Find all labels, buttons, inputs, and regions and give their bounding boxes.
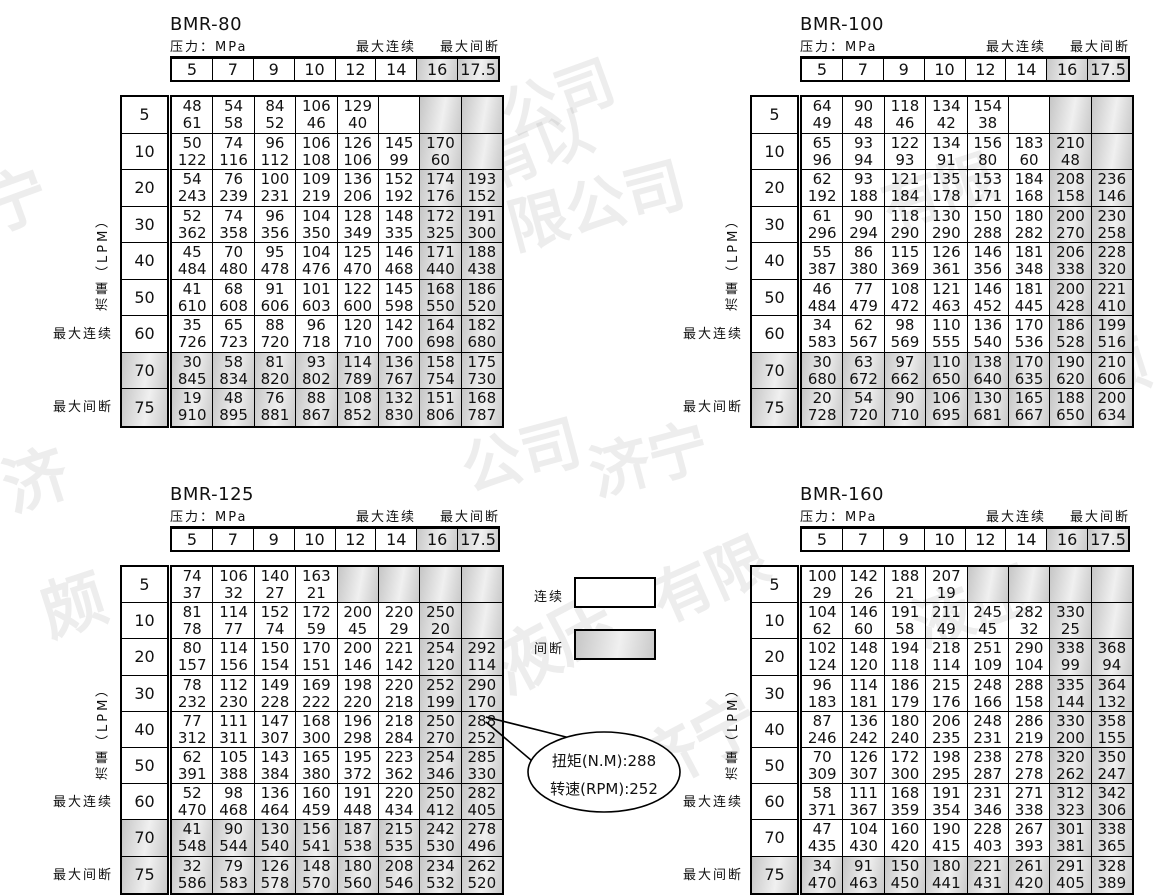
torque-value: 186 [462, 281, 502, 298]
pressure-header-cell: 14 [1006, 529, 1047, 550]
speed-value: 37 [172, 585, 212, 602]
data-cell: 34470 [802, 857, 843, 893]
data-cell: 120710 [338, 316, 379, 353]
torque-value: 200 [338, 640, 378, 657]
speed-value: 219 [296, 188, 336, 205]
data-cell: 54243 [172, 170, 213, 207]
torque-value: 207 [926, 568, 966, 585]
data-cell: 286219 [1009, 712, 1050, 748]
speed-value: 290 [885, 225, 925, 242]
speed-value: 307 [255, 730, 295, 747]
data-cell: 96183 [802, 676, 843, 712]
speed-value: 338 [1009, 802, 1049, 819]
data-cell: 170536 [1009, 316, 1050, 353]
data-cell: 215176 [926, 676, 967, 712]
torque-value: 104 [802, 604, 842, 621]
torque-value: 90 [885, 390, 925, 407]
speed-value: 247 [1092, 766, 1132, 783]
speed-value: 158 [1050, 188, 1090, 205]
speed-value: 168 [1009, 188, 1049, 205]
torque-value: 242 [420, 821, 460, 838]
torque-value: 136 [843, 713, 883, 730]
data-cell: 4861 [172, 97, 213, 134]
data-table-body: 6449904811846134421543865969394122931349… [800, 95, 1134, 428]
torque-value: 170 [1009, 317, 1049, 334]
speed-value: 528 [1050, 334, 1090, 351]
data-cell: 170635 [1009, 353, 1050, 390]
data-cell: 12940 [338, 97, 379, 134]
torque-value: 125 [338, 244, 378, 261]
flow-header-cell: 30 [122, 676, 167, 712]
data-cell: 200428 [1050, 280, 1091, 317]
torque-value: 215 [926, 677, 966, 694]
torque-value: 41 [172, 821, 212, 838]
pressure-header-row: 5791012141617.5 [170, 527, 500, 552]
torque-value: 48 [172, 98, 212, 115]
torque-value: 282 [462, 785, 502, 802]
data-cell: 278496 [462, 820, 502, 856]
torque-value: 172 [420, 208, 460, 225]
torque-value: 97 [885, 354, 925, 371]
speed-value: 710 [338, 334, 378, 351]
data-cell: 62192 [802, 170, 843, 207]
torque-value: 114 [338, 354, 378, 371]
table-row: 8015711415615015417015120014622114225412… [172, 639, 502, 675]
data-cell: 218284 [379, 712, 420, 748]
flow-header-cell: 75 [122, 389, 167, 426]
data-cell: 220218 [379, 676, 420, 712]
torque-value: 114 [843, 677, 883, 694]
data-cell: 160459 [296, 784, 337, 820]
max-continuous-column-label: 最大连续 [986, 506, 1046, 525]
pressure-header-cell: 12 [966, 529, 1007, 550]
torque-value: 330 [1050, 604, 1090, 621]
data-cell: 136540 [968, 316, 1009, 353]
data-cell: 330200 [1050, 712, 1091, 748]
data-cell: 80157 [172, 639, 213, 675]
speed-value: 122 [172, 152, 212, 169]
torque-value: 41 [172, 281, 212, 298]
speed-value: 290 [926, 225, 966, 242]
torque-value: 142 [843, 568, 883, 585]
pressure-header-row: 5791012141617.5 [800, 57, 1130, 82]
torque-value: 100 [802, 568, 842, 585]
speed-value: 428 [1050, 298, 1090, 315]
speed-value: 330 [462, 766, 502, 783]
torque-value: 151 [420, 390, 460, 407]
pressure-header-cell: 7 [213, 59, 254, 80]
flow-header-cell: 70 [752, 820, 797, 856]
torque-value: 61 [802, 208, 842, 225]
watermark-text: 济 [0, 422, 79, 529]
speed-value: 104 [1009, 657, 1049, 674]
speed-value: 45 [968, 621, 1008, 638]
table-row: 6129690294118290130290150288180282200270… [802, 207, 1132, 244]
torque-value: 221 [1092, 281, 1132, 298]
speed-value: 567 [843, 334, 883, 351]
torque-value: 228 [1092, 244, 1132, 261]
data-cell: 218114 [926, 639, 967, 675]
speed-value: 152 [462, 188, 502, 205]
torque-value: 168 [462, 390, 502, 407]
torque-value: 111 [213, 713, 253, 730]
table-row: 4648477479108472121463146452181445200428… [802, 280, 1132, 317]
data-cell: 79583 [213, 857, 254, 893]
speed-value: 852 [338, 407, 378, 424]
speed-value: 608 [213, 298, 253, 315]
data-cell: 168550 [420, 280, 461, 317]
data-cell: 250412 [420, 784, 461, 820]
speed-value: 294 [843, 225, 883, 242]
table-row: 1021241481201941182181142511092901043389… [802, 639, 1132, 675]
torque-value: 180 [885, 713, 925, 730]
torque-value: 286 [1009, 713, 1049, 730]
data-cell: 242530 [420, 820, 461, 856]
data-cell: 15680 [968, 134, 1009, 171]
data-cell: 15274 [255, 603, 296, 639]
torque-value: 338 [1050, 640, 1090, 657]
speed-value: 176 [926, 694, 966, 711]
flow-header-cell: 75 [752, 857, 797, 893]
pressure-header-row: 5791012141617.5 [800, 527, 1130, 552]
speed-value: 387 [802, 261, 842, 278]
data-cell: 111367 [843, 784, 884, 820]
data-cell: 278278 [1009, 748, 1050, 784]
speed-value: 58 [213, 115, 253, 132]
torque-value: 138 [968, 354, 1008, 371]
speed-value: 350 [296, 225, 336, 242]
torque-value: 350 [1092, 749, 1132, 766]
data-cell: 182680 [462, 316, 502, 353]
speed-value: 834 [213, 371, 253, 388]
torque-value: 182 [462, 317, 502, 334]
pressure-header-cell: 10 [295, 529, 336, 550]
speed-value: 420 [885, 838, 925, 855]
pressure-header-cell: 16 [1047, 529, 1088, 550]
torque-value: 254 [420, 640, 460, 657]
max-continuous-row-label: 最大连续 [637, 791, 743, 810]
speed-value: 728 [802, 407, 842, 424]
data-cell [462, 567, 502, 603]
flow-header-cell: 40 [122, 243, 167, 280]
data-cell: 190620 [1050, 353, 1091, 390]
torque-value: 165 [296, 749, 336, 766]
data-cell: 121184 [885, 170, 926, 207]
torque-value: 220 [379, 677, 419, 694]
data-cell: 191448 [338, 784, 379, 820]
speed-value: 530 [420, 838, 460, 855]
data-cell: 96356 [255, 207, 296, 244]
data-cell: 150450 [885, 857, 926, 893]
data-cell: 254120 [420, 639, 461, 675]
data-cell: 30845 [172, 353, 213, 390]
torque-value: 188 [1050, 390, 1090, 407]
data-cell [420, 567, 461, 603]
data-cell: 52362 [172, 207, 213, 244]
pressure-header-cell: 12 [336, 59, 377, 80]
torque-value: 254 [420, 749, 460, 766]
data-cell: 110555 [926, 316, 967, 353]
speed-value: 60 [420, 152, 460, 169]
speed-value: 720 [255, 334, 295, 351]
torque-value: 63 [843, 354, 883, 371]
data-cell: 282405 [462, 784, 502, 820]
speed-value: 219 [1009, 730, 1049, 747]
table-row: 3258679583126578148570180560208546234532… [172, 857, 502, 893]
speed-value: 435 [802, 838, 842, 855]
max-intermittent-column-label: 最大间断 [1070, 36, 1130, 55]
speed-value: 346 [968, 802, 1008, 819]
speed-value: 723 [213, 334, 253, 351]
torque-value: 77 [843, 281, 883, 298]
speed-value: 154 [255, 657, 295, 674]
pressure-header-cell: 9 [884, 59, 925, 80]
speed-value: 231 [968, 730, 1008, 747]
speed-value: 540 [255, 838, 295, 855]
data-cell: 118290 [885, 207, 926, 244]
data-cell: 180560 [338, 857, 379, 893]
data-cell: 9394 [843, 134, 884, 171]
torque-value: 148 [296, 858, 336, 875]
speed-value: 170 [462, 694, 502, 711]
data-cell: 6449 [802, 97, 843, 134]
data-cell: 186179 [885, 676, 926, 712]
speed-value: 120 [843, 657, 883, 674]
speed-value: 42 [926, 115, 966, 132]
torque-value: 88 [255, 317, 295, 334]
speed-value: 470 [172, 802, 212, 819]
data-cell: 33025 [1050, 603, 1091, 639]
torque-value: 208 [1050, 171, 1090, 188]
max-intermittent-column-label: 最大间断 [440, 36, 500, 55]
data-cell: 248231 [968, 712, 1009, 748]
data-cell: 88867 [296, 389, 337, 426]
data-cell: 55387 [802, 243, 843, 280]
data-cell: 136242 [843, 712, 884, 748]
flow-header-cell: 20 [122, 639, 167, 675]
torque-value: 218 [926, 640, 966, 657]
torque-value: 106 [926, 390, 966, 407]
torque-value: 282 [1009, 604, 1049, 621]
torque-value: 278 [1009, 749, 1049, 766]
flow-header-cell: 30 [752, 676, 797, 712]
speed-value: 287 [968, 766, 1008, 783]
torque-value: 65 [802, 135, 842, 152]
speed-value: 895 [213, 407, 253, 424]
pressure-unit-label: 压力：MPa [170, 36, 247, 55]
speed-value: 288 [968, 225, 1008, 242]
speed-value: 787 [462, 407, 502, 424]
data-cell: 8452 [255, 97, 296, 134]
speed-value: 440 [420, 261, 460, 278]
torque-value: 93 [843, 135, 883, 152]
torque-value: 172 [296, 604, 336, 621]
speed-value: 550 [420, 298, 460, 315]
torque-value: 108 [338, 390, 378, 407]
table-row: 7731211131114730716830019629821828425027… [172, 712, 502, 748]
data-cell: 191300 [462, 207, 502, 244]
torque-value: 251 [968, 640, 1008, 657]
data-cell: 200634 [1092, 389, 1132, 426]
data-cell: 252199 [420, 676, 461, 712]
speed-value: 231 [255, 188, 295, 205]
speed-value: 845 [172, 371, 212, 388]
speed-value: 698 [420, 334, 460, 351]
torque-value: 87 [802, 713, 842, 730]
data-cell: 138640 [968, 353, 1009, 390]
speed-value: 484 [802, 298, 842, 315]
speed-value: 548 [172, 838, 212, 855]
torque-value: 20 [802, 390, 842, 407]
data-cell: 20728 [802, 389, 843, 426]
speed-value: 789 [338, 371, 378, 388]
speed-value: 142 [379, 657, 419, 674]
torque-value: 30 [802, 354, 842, 371]
speed-value: 412 [420, 802, 460, 819]
data-cell: 13491 [926, 134, 967, 171]
data-cell: 105388 [213, 748, 254, 784]
flow-header-cell: 50 [122, 748, 167, 784]
max-continuous-row-label: 最大连续 [7, 323, 113, 342]
pressure-header-cell: 14 [1006, 59, 1047, 80]
data-cell: 290104 [1009, 639, 1050, 675]
speed-value: 388 [213, 766, 253, 783]
flow-header-cell: 40 [752, 712, 797, 748]
flow-header-cell: 70 [122, 820, 167, 856]
speed-value: 555 [926, 334, 966, 351]
data-cell: 312323 [1050, 784, 1091, 820]
flow-header-column: 51020304050607075 [120, 565, 169, 895]
torque-value: 126 [255, 858, 295, 875]
data-cell: 88720 [255, 316, 296, 353]
data-cell: 104430 [843, 820, 884, 856]
torque-value: 245 [968, 604, 1008, 621]
data-cell: 248166 [968, 676, 1009, 712]
flow-header-column: 51020304050607075 [750, 565, 799, 895]
speed-value: 635 [1009, 371, 1049, 388]
data-cell: 168300 [296, 712, 337, 748]
torque-value: 93 [296, 354, 336, 371]
data-cell: 58371 [802, 784, 843, 820]
data-cell: 35726 [172, 316, 213, 353]
torque-value: 181 [1009, 244, 1049, 261]
flow-header-cell: 50 [752, 748, 797, 784]
speed-value: 93 [885, 152, 925, 169]
speed-value: 700 [379, 334, 419, 351]
speed-value: 681 [968, 407, 1008, 424]
data-cell: 106695 [926, 389, 967, 426]
data-cell: 288158 [1009, 676, 1050, 712]
torque-value: 152 [379, 171, 419, 188]
max-intermittent-column-label: 最大间断 [1070, 506, 1130, 525]
torque-value: 132 [379, 390, 419, 407]
data-cell: 170151 [296, 639, 337, 675]
speed-value: 114 [926, 657, 966, 674]
speed-value: 538 [338, 838, 378, 855]
speed-value: 680 [462, 334, 502, 351]
data-cell: 186520 [462, 280, 502, 317]
speed-value: 640 [968, 371, 1008, 388]
torque-value: 252 [420, 677, 460, 694]
data-cell: 63672 [843, 353, 884, 390]
data-cell: 100231 [255, 170, 296, 207]
speed-value: 520 [462, 875, 502, 892]
torque-value: 301 [1050, 821, 1090, 838]
pressure-header-cell: 12 [336, 529, 377, 550]
speed-value: 463 [843, 875, 883, 892]
data-cell: 358155 [1092, 712, 1132, 748]
speed-value: 278 [1009, 766, 1049, 783]
torque-value: 238 [968, 749, 1008, 766]
speed-value: 32 [213, 585, 253, 602]
speed-value: 535 [379, 838, 419, 855]
torque-value: 170 [1009, 354, 1049, 371]
data-cell: 146356 [968, 243, 1009, 280]
data-cell: 158754 [420, 353, 461, 390]
torque-value: 368 [1092, 640, 1132, 657]
torque-value: 111 [843, 785, 883, 802]
flow-header-cell: 20 [122, 170, 167, 207]
data-cell: 41610 [172, 280, 213, 317]
data-cell: 98468 [213, 784, 254, 820]
data-cell [420, 97, 461, 134]
data-cell: 196298 [338, 712, 379, 748]
legend-continuous-swatch [574, 577, 656, 608]
torque-value: 210 [1092, 354, 1132, 371]
torque-value: 146 [843, 604, 883, 621]
data-cell: 91463 [843, 857, 884, 893]
torque-value: 106 [213, 568, 253, 585]
torque-value: 206 [1050, 244, 1090, 261]
speed-value: 463 [926, 298, 966, 315]
torque-value: 146 [379, 244, 419, 261]
flow-header-cell: 30 [122, 207, 167, 244]
torque-value: 147 [255, 713, 295, 730]
data-cell: 48895 [213, 389, 254, 426]
speed-value: 146 [1092, 188, 1132, 205]
speed-value: 232 [172, 694, 212, 711]
speed-value: 146 [338, 657, 378, 674]
max-continuous-row-label: 最大连续 [7, 791, 113, 810]
data-cell: 223362 [379, 748, 420, 784]
data-cell: 17259 [296, 603, 337, 639]
speed-value: 452 [968, 298, 1008, 315]
data-cell: 114181 [843, 676, 884, 712]
data-cell: 101603 [296, 280, 337, 317]
torque-value: 169 [296, 677, 336, 694]
speed-value: 60 [1009, 152, 1049, 169]
speed-value: 667 [1009, 407, 1049, 424]
speed-value: 109 [968, 657, 1008, 674]
data-cell: 194118 [885, 639, 926, 675]
data-cell: 206338 [1050, 243, 1091, 280]
speed-value: 754 [420, 371, 460, 388]
speed-value: 356 [968, 261, 1008, 278]
data-cell: 208546 [379, 857, 420, 893]
data-cell: 262520 [462, 857, 502, 893]
pressure-header-cell: 5 [172, 59, 213, 80]
speed-value: 516 [1092, 334, 1132, 351]
data-cell [462, 97, 502, 134]
speed-value: 262 [1050, 766, 1090, 783]
speed-value: 830 [379, 407, 419, 424]
pressure-header-cell: 7 [843, 529, 884, 550]
data-cell: 28232 [1009, 603, 1050, 639]
data-cell: 46484 [802, 280, 843, 317]
pressure-header-cell: 5 [802, 529, 843, 550]
data-cell: 188438 [462, 243, 502, 280]
torque-value: 101 [296, 281, 336, 298]
